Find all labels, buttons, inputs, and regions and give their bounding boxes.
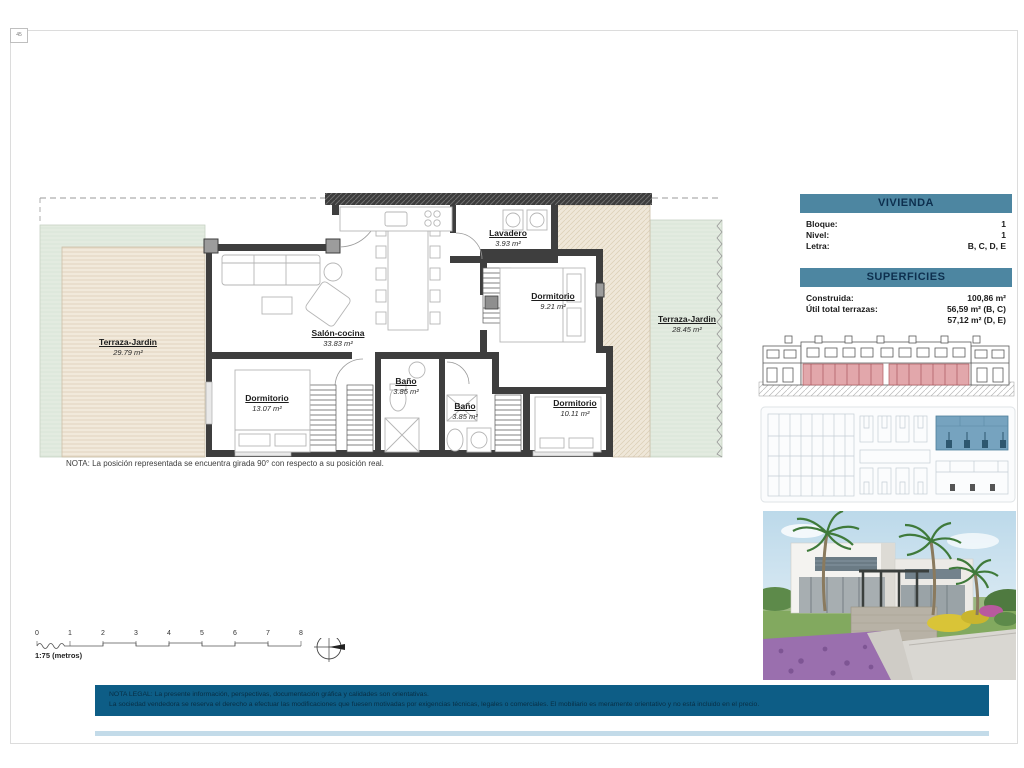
superficies-row-construida: Construida:100,86 m² <box>806 293 1006 304</box>
scale-bar-graphic <box>33 638 363 662</box>
scale-bar: 0 1 2 3 4 5 6 7 8 1:75 (metros) <box>33 630 363 666</box>
room-label-bano-2: Baño3.85 m² <box>452 401 477 421</box>
room-label-terraza-left: Terraza-Jardin29.79 m² <box>99 337 157 357</box>
legal-line-1: NOTA LEGAL: La presente información, per… <box>109 690 989 700</box>
vivienda-row-letra: Letra:B, C, D, E <box>806 241 1006 252</box>
vivienda-row-nivel: Nivel:1 <box>806 230 1006 241</box>
room-label-lavadero: Lavadero3.93 m² <box>489 228 527 248</box>
site-plan-drawing <box>760 406 1016 503</box>
superficies-row-terrazas-bc: Útil total terrazas:56,59 m² (B, C) <box>806 304 1006 315</box>
floor-plan: Terraza-Jardin29.79 m² Salón-cocina33.83… <box>35 190 725 468</box>
legal-note-bar: NOTA LEGAL: La presente información, per… <box>95 685 989 716</box>
vivienda-header: VIVIENDA <box>800 194 1012 213</box>
floor-plan-drawing <box>35 190 725 468</box>
vivienda-table: Bloque:1 Nivel:1 Letra:B, C, D, E <box>806 219 1006 252</box>
property-render-photo <box>763 511 1016 680</box>
superficies-row-terrazas-de: 57,12 m² (D, E) <box>806 315 1006 326</box>
room-label-bano-1: Baño3.85 m² <box>393 376 418 396</box>
superficies-header: SUPERFICIES <box>800 268 1012 287</box>
room-label-terraza-right: Terraza-Jardin28.45 m² <box>658 314 716 334</box>
legal-line-2: La sociedad vendedora se reserva el dere… <box>109 700 989 710</box>
room-label-salon-cocina: Salón-cocina33.83 m² <box>312 328 365 348</box>
room-label-dormitorio-1011: Dormitorio10.11 m² <box>553 398 596 418</box>
plan-sheet-page: 45 <box>0 0 1024 768</box>
superficies-table: Construida:100,86 m² Útil total terrazas… <box>806 293 1006 326</box>
page-number-box: 45 <box>10 28 28 43</box>
legal-bar-underline <box>95 731 989 736</box>
room-label-dormitorio-921: Dormitorio9.21 m² <box>531 291 574 311</box>
orientation-note: NOTA: La posición representada se encuen… <box>66 459 384 468</box>
room-label-dormitorio-1307: Dormitorio13.07 m² <box>245 393 288 413</box>
scale-ratio-label: 1:75 (metros) <box>35 651 82 660</box>
building-elevation-drawing <box>757 330 1016 402</box>
north-compass-icon <box>314 638 345 662</box>
vivienda-row-bloque: Bloque:1 <box>806 219 1006 230</box>
